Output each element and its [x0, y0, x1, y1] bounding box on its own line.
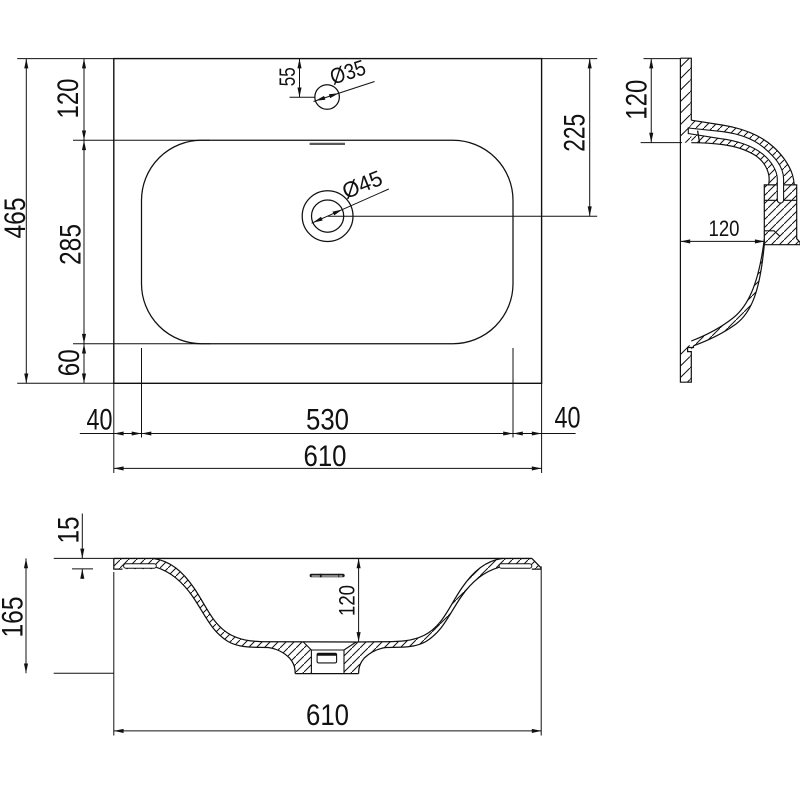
svg-text:120: 120: [335, 585, 360, 616]
svg-text:55: 55: [275, 67, 300, 86]
svg-text:225: 225: [559, 114, 592, 152]
svg-text:120: 120: [621, 80, 654, 120]
svg-text:165: 165: [0, 597, 30, 638]
svg-text:60: 60: [53, 349, 86, 376]
svg-text:465: 465: [0, 198, 32, 239]
svg-text:40: 40: [555, 402, 581, 435]
svg-text:285: 285: [55, 224, 88, 265]
svg-text:610: 610: [304, 440, 347, 473]
svg-text:120: 120: [709, 216, 740, 241]
svg-text:40: 40: [87, 404, 113, 437]
svg-text:610: 610: [306, 699, 349, 732]
svg-text:120: 120: [52, 79, 85, 119]
svg-text:15: 15: [53, 517, 86, 544]
svg-text:530: 530: [306, 404, 349, 437]
